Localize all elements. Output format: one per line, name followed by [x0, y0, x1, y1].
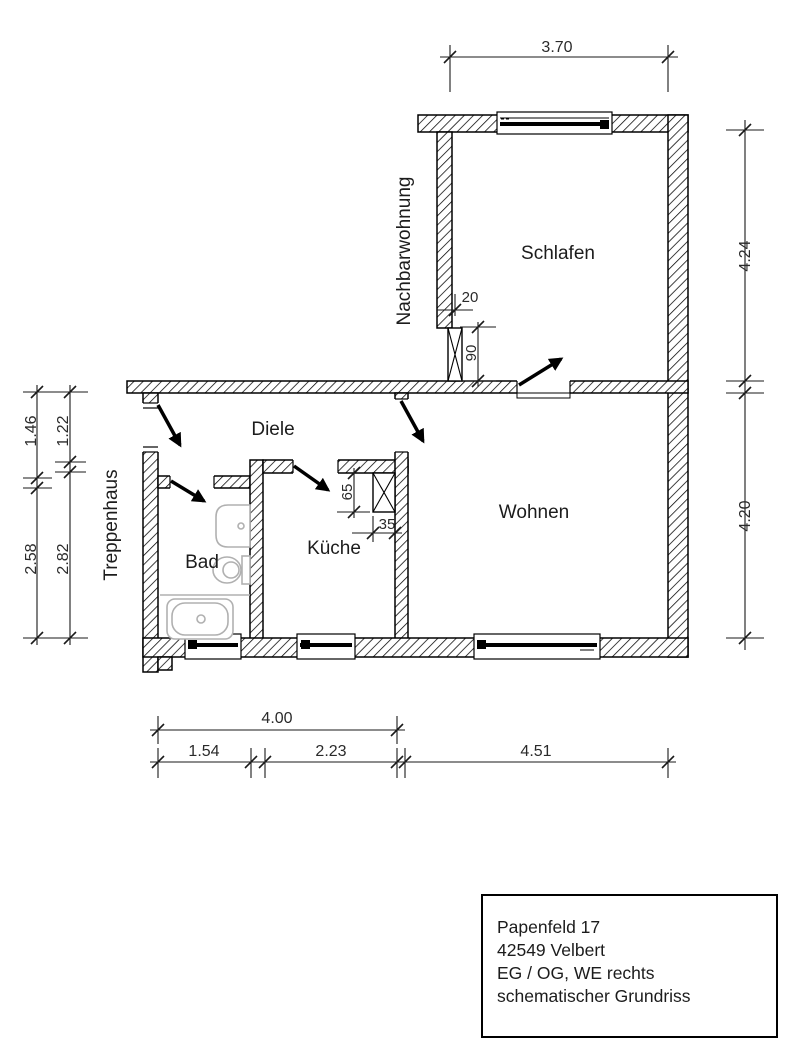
dim-kueche-shaft-width-label: 35 — [379, 516, 396, 533]
room-label-wohnen: Wohnen — [499, 502, 569, 523]
window-schlafen — [497, 112, 612, 134]
dim-bottom-total-label: 4.00 — [261, 710, 292, 727]
label-treppenhaus: Treppenhaus — [101, 469, 122, 580]
window-wohnen — [474, 634, 600, 659]
dim-top: 3.70 — [440, 39, 678, 92]
door-entrance — [142, 403, 180, 452]
wall-middle — [127, 381, 688, 393]
room-label-bad: Bad — [185, 552, 219, 573]
wall-bad-kueche — [250, 460, 263, 640]
dim-left: 1.46 1.22 2.58 2.82 — [23, 385, 88, 645]
vent-shaft-kueche — [373, 473, 395, 512]
door-bad — [170, 475, 214, 501]
dim-top-label: 3.70 — [541, 39, 572, 56]
dim-left-outer-upper-label: 1.46 — [23, 415, 40, 446]
dim-shaft-width-label: 20 — [462, 289, 479, 306]
wc-bowl-inner — [223, 562, 239, 578]
title-type-line: schematischer Grundriss — [497, 986, 691, 1006]
dim-right-upper-label: 4.24 — [737, 240, 754, 271]
dim-right: 4.24 4.20 — [726, 120, 764, 650]
door-schlafen — [517, 359, 570, 398]
dim-bottom-kueche-label: 2.23 — [315, 743, 346, 760]
dim-left-inner-upper-label: 1.22 — [55, 415, 72, 446]
title-address-line1: Papenfeld 17 — [497, 917, 600, 937]
wc-tank — [242, 556, 250, 584]
window-kueche — [297, 634, 355, 659]
dim-left-outer-lower-label: 2.58 — [23, 543, 40, 574]
bathtub-drain — [197, 615, 205, 623]
floor-plan-page: 3.70 4.24 4.20 — [0, 0, 785, 1049]
dim-bottom: 4.00 1.54 2.23 4.51 — [150, 710, 676, 778]
title-block: Papenfeld 17 42549 Velbert EG / OG, WE r… — [482, 895, 777, 1037]
washbasin-drain — [238, 523, 244, 529]
dim-kueche-shaft-length-label: 65 — [339, 484, 356, 501]
washbasin — [216, 505, 250, 547]
door-wohnen — [394, 399, 423, 452]
wall-schlafen-left — [437, 132, 452, 328]
room-label-kueche: Küche — [307, 538, 361, 559]
label-nachbarwohnung: Nachbarwohnung — [394, 177, 415, 326]
title-address-line2: 42549 Velbert — [497, 940, 605, 960]
wall-stairwell-stub — [158, 657, 172, 670]
title-unit-line: EG / OG, WE rechts — [497, 963, 655, 983]
dimensions: 3.70 4.24 4.20 — [23, 39, 764, 778]
shafts — [373, 328, 462, 512]
dim-shaft-length-label: 90 — [463, 345, 480, 362]
room-label-diele: Diele — [251, 419, 294, 440]
dim-left-inner-lower-label: 2.82 — [55, 543, 72, 574]
door-kueche — [293, 459, 338, 490]
vent-shaft-schlafen — [448, 328, 462, 381]
dim-bottom-bad-label: 1.54 — [188, 743, 219, 760]
floor-plan-canvas: 3.70 4.24 4.20 — [0, 0, 785, 1049]
room-label-schlafen: Schlafen — [521, 243, 595, 264]
dim-right-lower-label: 4.20 — [737, 500, 754, 531]
dim-bottom-wohnen-label: 4.51 — [520, 743, 551, 760]
